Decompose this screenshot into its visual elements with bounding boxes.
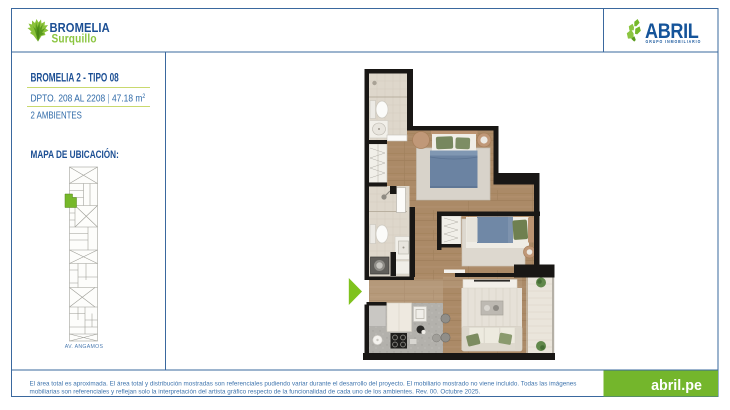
svg-text:mobiliarias son referenciales: mobiliarias son referenciales y reflejan…	[30, 389, 481, 396]
svg-text:DPTO. 208 AL 2208 | 47.18 m2: DPTO. 208 AL 2208 | 47.18 m2	[31, 93, 146, 105]
svg-text:El área total es aproximada. E: El área total es aproximada. El área tot…	[30, 381, 577, 388]
svg-text:Surquillo: Surquillo	[52, 33, 97, 46]
svg-text:GRUPO INMOBILIARIO: GRUPO INMOBILIARIO	[646, 39, 702, 44]
svg-text:abril.pe: abril.pe	[651, 378, 702, 394]
svg-text:2 AMBIENTES: 2 AMBIENTES	[31, 110, 82, 121]
svg-text:BROMELIA 2 - TIPO 08: BROMELIA 2 - TIPO 08	[31, 72, 120, 85]
svg-text:MAPA DE UBICACIÓN:: MAPA DE UBICACIÓN:	[31, 148, 119, 162]
svg-text:AV. ANGAMOS: AV. ANGAMOS	[65, 344, 104, 350]
